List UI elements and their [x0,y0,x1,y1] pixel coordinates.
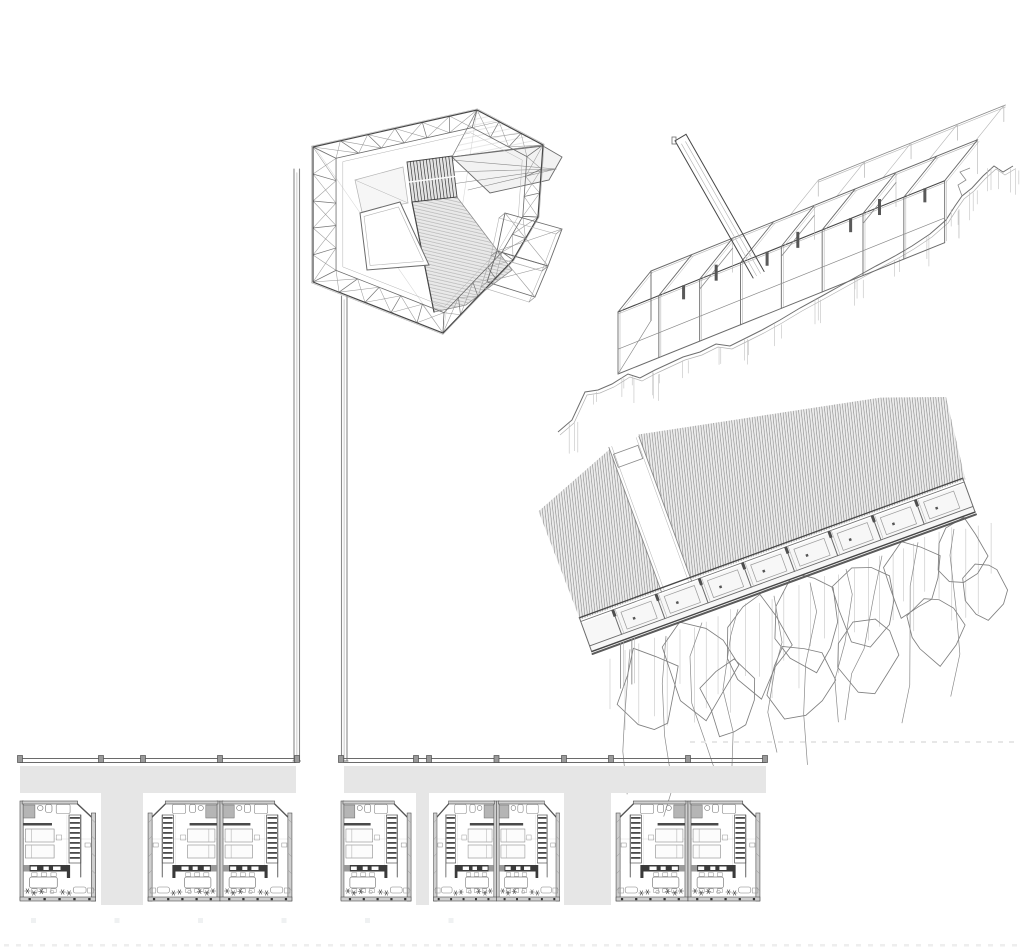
separator-band [101,766,143,905]
ghost-dash [340,944,345,947]
unit-normal [220,801,292,901]
rock-crack [690,623,716,773]
column-tick [18,756,23,763]
ground-dash [866,741,871,743]
ground-dash [723,741,728,743]
ghost-dash [304,944,309,947]
ghost-dash [676,944,681,947]
ghost-dash [808,944,813,947]
ghost-dash [256,944,261,947]
rock-crack [902,542,918,723]
ghost-dash [820,944,825,947]
ground-dash [976,741,981,743]
hillside-rotated-group [526,331,1002,694]
ghost-dash [280,944,285,947]
ghost-dash [124,944,129,947]
ghost-dash [760,944,765,947]
ghost-dash [496,944,501,947]
ghost-dash [244,944,249,947]
ghost-dash [448,944,453,947]
ghost-dash [520,944,525,947]
ghost-dash [436,944,441,947]
plan-unit-pair [616,801,760,901]
ground-dash [921,741,926,743]
ghost-square [198,918,203,923]
ghost-dash [616,944,621,947]
ghost-dash [376,944,381,947]
ghost-dash [352,944,357,947]
ground-dash [701,741,706,743]
ghost-dash [580,944,585,947]
ground-dash [987,741,992,743]
ground-dash [855,741,860,743]
ground-dash [943,741,948,743]
ghost-dash [712,944,717,947]
drawing-canvas [0,0,1024,950]
ghost-dash [472,944,477,947]
ghost-square [365,918,370,923]
plan-unit-single [341,801,411,901]
rock-blob [938,517,988,582]
ghost-dash [184,944,189,947]
rock-crack [804,582,817,764]
ghost-dash [1012,944,1017,947]
unit-normal [341,801,411,901]
ghost-dash [556,944,561,947]
ghost-dash [604,944,609,947]
column-tick [427,756,432,763]
ghost-dash [868,944,873,947]
column-tick [141,756,146,763]
ghost-dash [916,944,921,947]
plan-unit-single [20,801,96,901]
ghost-dash [796,944,801,947]
ground-dash [998,741,1003,743]
ground-dash [833,741,838,743]
unit-mirrored [433,801,496,901]
ghost-square [282,918,287,923]
ground-dash [932,741,937,743]
scan-ghost-marks [4,918,1017,947]
unit-normal [688,801,760,901]
ghost-dash [316,944,321,947]
ghost-dash [16,944,21,947]
unit-normal [20,801,96,901]
axon-wireframe-pavilion [311,109,562,335]
column-tick [763,756,768,763]
separator-band [416,766,429,905]
ghost-dash [292,944,297,947]
ground-dash [767,741,772,743]
ghost-dash [688,944,693,947]
ghost-dash [136,944,141,947]
door-post-stub [849,218,852,232]
ghost-dash [700,944,705,947]
sketch-sheet [0,0,1024,950]
ghost-dash [772,944,777,947]
door-post-stub [923,188,926,202]
ground-dash [844,741,849,743]
ghost-dash [784,944,789,947]
column-tick [339,756,344,763]
ghost-square [115,918,120,923]
ghost-dash [952,944,957,947]
door-post-stub [878,199,881,215]
column-tick [99,756,104,763]
column-tick [562,756,567,763]
ground-dash [778,741,783,743]
rock-crack [845,556,882,720]
ghost-square [31,918,36,923]
column-tick [494,756,499,763]
ghost-dash [172,944,177,947]
pilotis-connector-lines [293,169,348,761]
ghost-dash [928,944,933,947]
ghost-dash [640,944,645,947]
ground-dash [910,741,915,743]
ghost-dash [1000,944,1005,947]
plan-unit-pair [433,801,559,901]
ghost-dash [964,944,969,947]
ghost-dash [268,944,273,947]
ghost-dash [160,944,165,947]
ghost-dash [484,944,489,947]
rock-blob [700,659,755,737]
ghost-dash [628,944,633,947]
door-post-stub [766,252,769,266]
terrace-band [20,766,296,793]
axon-hillside-building-sketch [526,331,1014,816]
column-tick [686,756,691,763]
ground-dash [965,741,970,743]
ghost-dash [976,944,981,947]
ground-dash [899,741,904,743]
ghost-dash [232,944,237,947]
ghost-dash [460,944,465,947]
ghost-dash [4,944,9,947]
ground-dash [690,741,695,743]
separator-band [564,766,611,905]
rock-blob [832,568,894,647]
ghost-dash [112,944,117,947]
ghost-dash [724,944,729,947]
ground-dash [877,741,882,743]
column-tick [295,756,300,763]
rock-crack [768,596,782,753]
door-post-stub [796,232,799,248]
ghost-dash [88,944,93,947]
door-post-stub [715,265,718,281]
ghost-dash [100,944,105,947]
ghost-dash [664,944,669,947]
ground-dash [800,741,805,743]
rock-mark [958,168,970,196]
ghost-dash [988,944,993,947]
ghost-dash [40,944,45,947]
ghost-dash [508,944,513,947]
ghost-square [449,918,454,923]
floor-plan-strip [18,756,768,906]
ghost-dash [904,944,909,947]
ghost-dash [196,944,201,947]
rock-blob [963,564,1008,620]
ghost-dash [892,944,897,947]
ghost-dash [832,944,837,947]
ghost-dash [748,944,753,947]
unit-normal [497,801,560,901]
column-tick [218,756,223,763]
ghost-dash [412,944,417,947]
ghost-dash [544,944,549,947]
rock-blob [884,542,941,619]
ground-dash [811,741,816,743]
ground-dash [888,741,893,743]
ghost-dash [148,944,153,947]
ghost-dash [328,944,333,947]
ghost-dash [736,944,741,947]
plan-unit-pair [148,801,292,901]
ghost-dash [652,944,657,947]
rock-blob [775,573,838,673]
ghost-dash [364,944,369,947]
ghost-dash [844,944,849,947]
balcony-wing-frame [497,213,562,266]
rock-crack [835,569,852,722]
unit-mirrored [148,801,220,901]
ground-dash [822,741,827,743]
ghost-dash [388,944,393,947]
ghost-dash [880,944,885,947]
ghost-dash [940,944,945,947]
ground-dash [712,741,717,743]
ghost-dash [76,944,81,947]
column-tick [414,756,419,763]
rock-blob [617,648,678,729]
terrace-band [344,766,766,793]
ghost-dash [424,944,429,947]
ghost-dash [400,944,405,947]
door-post-stub [682,285,685,299]
ground-dash [756,741,761,743]
ghost-dash [220,944,225,947]
ghost-dash [568,944,573,947]
unit-mirrored [616,801,688,901]
ground-dash [1009,741,1014,743]
axon-structural-frame-sketch [558,105,1019,453]
ghost-dash [856,944,861,947]
ghost-dash [28,944,33,947]
ghost-dash [532,944,537,947]
ground-dash [745,741,750,743]
ground-dash [954,741,959,743]
ghost-dash [52,944,57,947]
ghost-dash [592,944,597,947]
ground-dash [789,741,794,743]
column-tick [609,756,614,763]
ghost-dash [208,944,213,947]
ground-dash [734,741,739,743]
ghost-dash [64,944,69,947]
